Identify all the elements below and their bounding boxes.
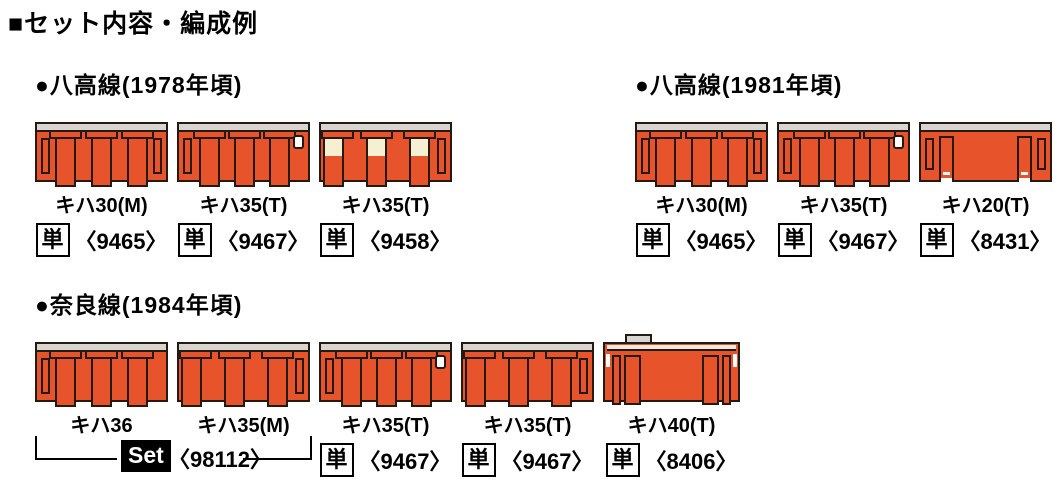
car-door bbox=[411, 357, 432, 407]
car-column: キハ30(M) 単 〈9465〉 bbox=[35, 122, 168, 257]
car-column: キハ35(T) 単 〈9458〉 bbox=[319, 122, 452, 257]
product-number: 〈9465〉 bbox=[675, 224, 768, 256]
type-row: 単 〈9467〉 bbox=[461, 443, 594, 477]
end-window bbox=[153, 138, 162, 174]
car-column: キハ40(T) 単 〈8406〉 bbox=[603, 342, 740, 477]
car-door bbox=[55, 357, 76, 407]
car-column: キハ30(M) 単 〈9465〉 bbox=[635, 122, 768, 257]
car-illustration-kiha35 bbox=[319, 342, 452, 402]
end-window bbox=[641, 138, 650, 174]
car-roof bbox=[321, 344, 450, 352]
car-roof bbox=[37, 344, 166, 352]
bracket-tick-right bbox=[310, 436, 312, 460]
car-column: キハ35(T) 単 〈9467〉 bbox=[461, 342, 594, 477]
catalog-formation-diagram: ■セット内容・編成例 ●八高線(1978年頃) キハ30(M) 単 〈9465〉… bbox=[0, 0, 1054, 480]
car-illustration-kiha30 bbox=[635, 122, 768, 182]
car-illustration-kiha40 bbox=[603, 342, 740, 402]
car-roof bbox=[607, 345, 736, 351]
car-illustration-kiha30 bbox=[35, 122, 168, 182]
section-hachiko-1978: ●八高線(1978年頃) キハ30(M) 単 〈9465〉 キハ35(T) 単 … bbox=[35, 66, 452, 257]
single-car-badge: 単 bbox=[36, 223, 70, 257]
single-car-badge: 単 bbox=[462, 443, 496, 477]
car-roof bbox=[321, 124, 450, 132]
underbody-notch bbox=[941, 178, 952, 182]
set-group-bracket: Set 〈98112〉 bbox=[35, 441, 312, 477]
car-roof bbox=[779, 124, 908, 132]
section-heading: ●八高線(1978年頃) bbox=[35, 66, 452, 96]
car-column: キハ35(M) bbox=[177, 342, 310, 437]
car-door bbox=[655, 137, 676, 187]
car-name: キハ30(M) bbox=[635, 195, 768, 217]
type-row: 単 〈9467〉 bbox=[177, 223, 310, 257]
end-window bbox=[579, 358, 588, 394]
end-window bbox=[733, 354, 737, 367]
car-door bbox=[702, 355, 719, 405]
car-door bbox=[341, 357, 362, 407]
bracket-line-right bbox=[243, 458, 310, 460]
car-door bbox=[722, 355, 731, 405]
car-illustration-kiha35-twotone bbox=[319, 122, 452, 182]
car-door bbox=[1017, 136, 1032, 180]
car-door bbox=[799, 137, 820, 187]
car-door bbox=[727, 137, 748, 187]
car-door bbox=[869, 137, 890, 187]
end-window bbox=[753, 138, 762, 174]
bracket-line-left bbox=[37, 458, 117, 460]
car-door bbox=[939, 136, 954, 180]
single-car-badge: 単 bbox=[778, 223, 812, 257]
type-row: 単 〈9465〉 bbox=[635, 223, 768, 257]
type-row: 単 〈9467〉 bbox=[777, 223, 910, 257]
type-row: 単 〈9465〉 bbox=[35, 223, 168, 257]
single-car-badge: 単 bbox=[636, 223, 670, 257]
end-window bbox=[295, 358, 304, 394]
car-roof bbox=[463, 344, 592, 352]
car-door bbox=[551, 357, 572, 407]
product-number: 〈9458〉 bbox=[359, 224, 452, 256]
toilet-window bbox=[893, 135, 904, 149]
car-roof bbox=[637, 124, 766, 132]
end-window bbox=[41, 358, 50, 394]
end-window bbox=[783, 138, 792, 174]
type-row: 単 〈9458〉 bbox=[319, 223, 452, 257]
single-car-badge: 単 bbox=[920, 223, 954, 257]
car-door bbox=[199, 137, 220, 187]
section-heading: ●奈良線(1984年頃) bbox=[35, 286, 740, 316]
product-number: 〈9467〉 bbox=[501, 444, 594, 476]
car-column: キハ35(T) 単 〈9467〉 bbox=[177, 122, 310, 257]
car-illustration-kiha35 bbox=[177, 342, 310, 402]
single-car-badge: 単 bbox=[606, 443, 640, 477]
end-window bbox=[925, 138, 934, 170]
type-row: 単 〈8431〉 bbox=[919, 223, 1052, 257]
car-name: キハ35(T) bbox=[319, 415, 452, 437]
car-illustration-kiha35 bbox=[177, 122, 310, 182]
car-name: キハ35(T) bbox=[319, 195, 452, 217]
end-window bbox=[325, 358, 334, 394]
car-name: キハ20(T) bbox=[919, 195, 1052, 217]
car-door bbox=[224, 357, 245, 407]
single-car-badge: 単 bbox=[178, 223, 212, 257]
car-door bbox=[55, 137, 76, 187]
page-title: ■セット内容・編成例 bbox=[8, 4, 258, 40]
cars-row: キハ30(M) 単 〈9465〉 キハ35(T) 単 〈9467〉 キハ20(T… bbox=[635, 122, 1052, 257]
bracket-tick-left bbox=[35, 436, 37, 460]
end-window bbox=[41, 138, 50, 174]
car-door bbox=[181, 357, 202, 407]
underbody-notch bbox=[1019, 178, 1030, 182]
toilet-window bbox=[293, 135, 304, 149]
set-badge: Set bbox=[121, 440, 171, 472]
product-number: 〈8431〉 bbox=[959, 224, 1052, 256]
car-door bbox=[376, 357, 397, 407]
type-row: 単 〈9467〉 bbox=[319, 443, 452, 477]
product-number: 〈9467〉 bbox=[359, 444, 452, 476]
car-door bbox=[409, 137, 430, 187]
car-name: キハ35(T) bbox=[777, 195, 910, 217]
car-door bbox=[234, 137, 255, 187]
car-name: キハ35(T) bbox=[461, 415, 594, 437]
car-illustration-kiha36 bbox=[35, 342, 168, 402]
car-name: キハ30(M) bbox=[35, 195, 168, 217]
car-name: キハ35(M) bbox=[177, 415, 310, 437]
car-roof bbox=[179, 124, 308, 132]
end-window bbox=[437, 138, 446, 174]
car-column: キハ20(T) 単 〈8431〉 bbox=[919, 122, 1052, 257]
cars-row: キハ30(M) 単 〈9465〉 キハ35(T) 単 〈9467〉 キハ35(T… bbox=[35, 122, 452, 257]
single-car-badge: 単 bbox=[320, 223, 354, 257]
product-number: 〈8406〉 bbox=[645, 444, 738, 476]
car-door bbox=[127, 137, 148, 187]
end-window bbox=[606, 354, 610, 367]
end-window bbox=[183, 138, 192, 174]
single-car-badge: 単 bbox=[320, 443, 354, 477]
car-door bbox=[366, 137, 387, 187]
car-door bbox=[267, 357, 288, 407]
end-window bbox=[1037, 138, 1046, 170]
type-row: 単 〈8406〉 bbox=[603, 443, 740, 477]
car-door bbox=[612, 355, 621, 405]
car-name: キハ35(T) bbox=[177, 195, 310, 217]
car-door bbox=[127, 357, 148, 407]
door-step-window bbox=[1021, 172, 1028, 175]
product-number: 〈9467〉 bbox=[217, 224, 310, 256]
car-roof bbox=[179, 344, 308, 352]
car-door bbox=[91, 357, 112, 407]
roof-vent bbox=[625, 334, 652, 344]
car-column: キハ36 bbox=[35, 342, 168, 437]
section-hachiko-1981: ●八高線(1981年頃) キハ30(M) 単 〈9465〉 キハ35(T) 単 … bbox=[635, 66, 1052, 257]
car-illustration-kiha20 bbox=[919, 122, 1052, 182]
car-door bbox=[465, 357, 486, 407]
car-door bbox=[269, 137, 290, 187]
section-nara-1984: ●奈良線(1984年頃) キハ36 キハ35(M) キハ35(T) 単 〈946… bbox=[35, 286, 740, 477]
car-name: キハ40(T) bbox=[603, 415, 740, 437]
car-column: キハ35(T) 単 〈9467〉 bbox=[777, 122, 910, 257]
car-door bbox=[624, 355, 641, 405]
car-door bbox=[508, 357, 529, 407]
car-illustration-kiha35 bbox=[461, 342, 594, 402]
section-heading: ●八高線(1981年頃) bbox=[635, 66, 1052, 96]
door-step-window bbox=[943, 172, 950, 175]
car-door bbox=[834, 137, 855, 187]
car-door bbox=[691, 137, 712, 187]
car-door bbox=[91, 137, 112, 187]
car-name: キハ36 bbox=[35, 415, 168, 437]
car-roof bbox=[37, 124, 166, 132]
car-door bbox=[323, 137, 344, 187]
car-roof bbox=[921, 124, 1050, 132]
car-column: キハ35(T) 単 〈9467〉 bbox=[319, 342, 452, 477]
product-number: 〈9465〉 bbox=[75, 224, 168, 256]
toilet-window bbox=[435, 355, 446, 369]
product-number: 〈9467〉 bbox=[817, 224, 910, 256]
car-illustration-kiha35 bbox=[777, 122, 910, 182]
